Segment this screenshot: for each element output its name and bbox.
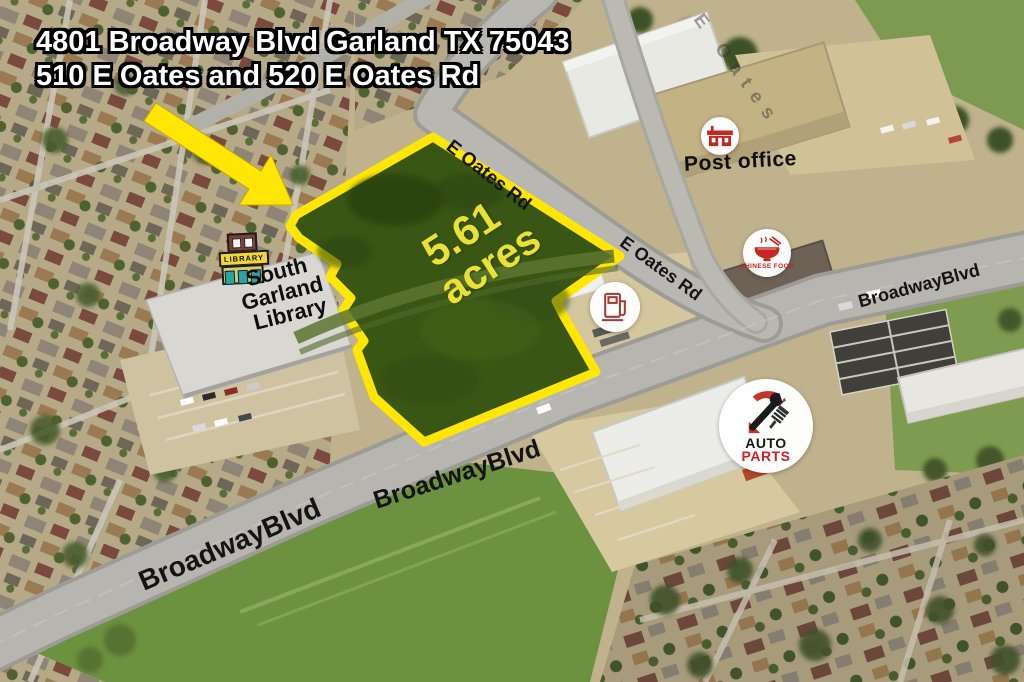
gas-pump-icon <box>598 289 632 325</box>
auto-parts-label-line2: PARTS <box>742 450 791 463</box>
auto-parts-label: AUTO PARTS <box>742 437 791 464</box>
auto-parts-badge: AUTO PARTS <box>719 379 813 473</box>
chinese-food-badge: CHINESE FOOD <box>743 229 791 277</box>
post-office-building-icon <box>706 125 734 147</box>
noodle-bowl-icon <box>752 236 782 262</box>
gas-station-badge <box>590 282 640 332</box>
aerial-photo: 4801 Broadway Blvd Garland TX 75043 510 … <box>0 0 1024 682</box>
wrench-shock-icon <box>741 389 791 435</box>
listing-title-line1: 4801 Broadway Blvd Garland TX 75043 <box>36 26 570 59</box>
post-office-badge <box>701 117 739 155</box>
chinese-food-label: CHINESE FOOD <box>740 263 794 270</box>
listing-title-line2: 510 E Oates and 520 E Oates Rd <box>36 60 479 93</box>
